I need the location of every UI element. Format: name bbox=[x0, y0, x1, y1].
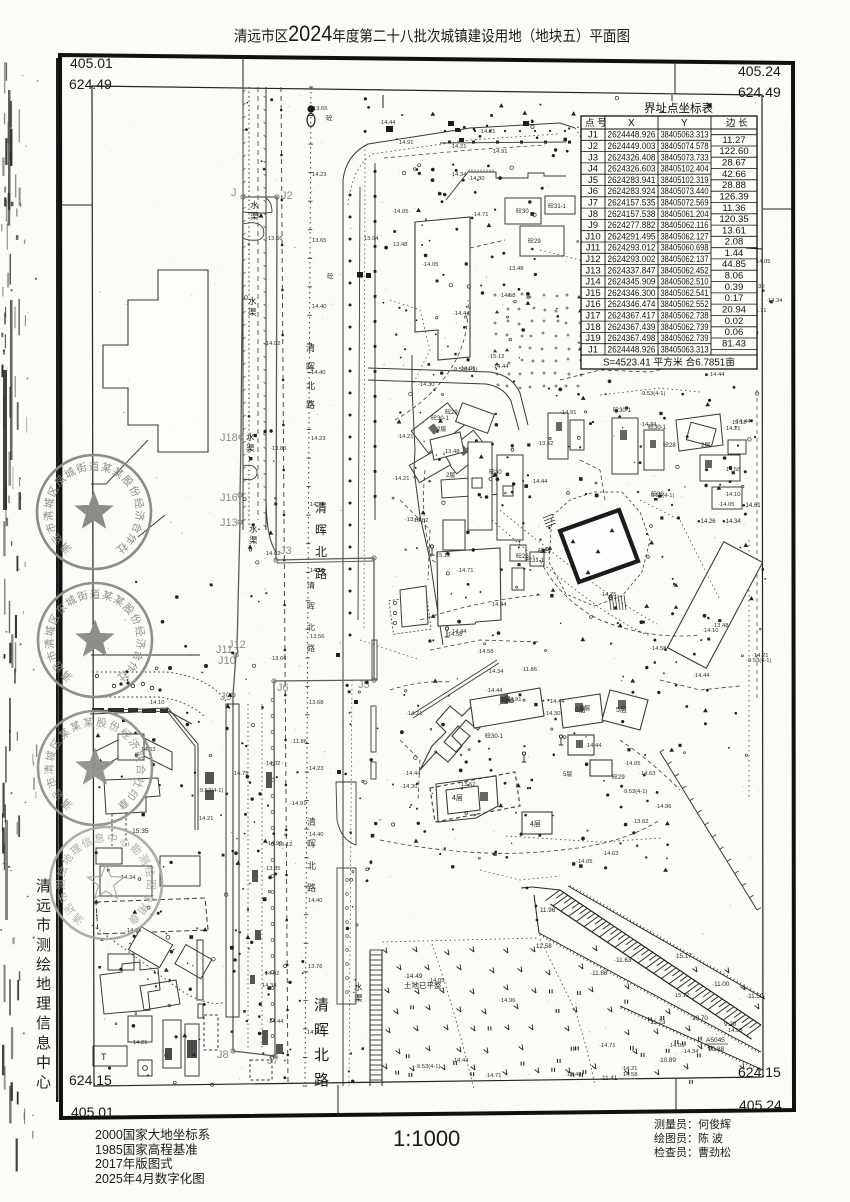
svg-text:绘: 绘 bbox=[36, 956, 51, 973]
svg-text:·14.34: ·14.34 bbox=[487, 669, 504, 675]
svg-text:中: 中 bbox=[106, 831, 118, 845]
svg-text:渠: 渠 bbox=[249, 535, 258, 545]
svg-text:2624346.474: 2624346.474 bbox=[608, 299, 657, 310]
svg-text:渠: 渠 bbox=[248, 307, 257, 317]
svg-text:J10: J10 bbox=[585, 231, 600, 242]
svg-text:44.85: 44.85 bbox=[722, 259, 746, 270]
svg-text:·14.44: ·14.44 bbox=[693, 673, 710, 679]
svg-text:A5045: A5045 bbox=[706, 1037, 725, 1044]
svg-text:·14.63: ·14.63 bbox=[639, 771, 655, 777]
svg-text:0.02: 0.02 bbox=[725, 316, 744, 327]
svg-text:·14.58: ·14.58 bbox=[650, 646, 666, 652]
svg-text:·10.89: ·10.89 bbox=[658, 1057, 676, 1064]
svg-text:·14.96: ·14.96 bbox=[655, 804, 671, 810]
svg-text:38405062.552: 38405062.552 bbox=[661, 299, 709, 310]
svg-text:路: 路 bbox=[314, 1072, 329, 1089]
svg-text:28.67: 28.67 bbox=[722, 158, 746, 169]
svg-text:38405062.116: 38405062.116 bbox=[661, 220, 709, 231]
svg-text:·14.30: ·14.30 bbox=[401, 784, 417, 790]
svg-text:·14.10: ·14.10 bbox=[148, 700, 164, 706]
svg-text:2624367.498: 2624367.498 bbox=[608, 333, 656, 344]
svg-text:J3: J3 bbox=[588, 152, 598, 163]
svg-text:边 长: 边 长 bbox=[726, 117, 748, 129]
svg-text:·13.48: ·13.48 bbox=[565, 1072, 581, 1078]
svg-text:·14.44: ·14.44 bbox=[404, 771, 421, 777]
svg-text:J18: J18 bbox=[220, 432, 238, 444]
svg-text:J5: J5 bbox=[358, 679, 370, 691]
svg-text:J7: J7 bbox=[588, 198, 598, 209]
svg-text:T: T bbox=[101, 1052, 107, 1062]
svg-text:界址点坐标表: 界址点坐标表 bbox=[644, 101, 713, 115]
svg-text:38405102.319: 38405102.319 bbox=[661, 175, 709, 186]
svg-text:4层: 4层 bbox=[452, 794, 463, 802]
svg-text:2624283.924: 2624283.924 bbox=[608, 186, 657, 197]
svg-text:38405102.404: 38405102.404 bbox=[661, 164, 710, 175]
svg-text:·14.02: ·14.02 bbox=[264, 551, 280, 557]
svg-text:清: 清 bbox=[314, 997, 329, 1014]
svg-text:38405062.452: 38405062.452 bbox=[661, 265, 709, 276]
svg-text:砼29: 砼29 bbox=[445, 408, 458, 416]
svg-text:0.39: 0.39 bbox=[725, 282, 744, 293]
svg-text:1.44: 1.44 bbox=[725, 248, 744, 259]
svg-text:·14.30: ·14.30 bbox=[468, 176, 484, 182]
svg-text:14.23: 14.23 bbox=[311, 436, 326, 442]
svg-text:·9.53(4-1): ·9.53(4-1) bbox=[640, 391, 666, 397]
svg-text:·14.05: ·14.05 bbox=[422, 262, 438, 268]
svg-text:2.08: 2.08 bbox=[725, 237, 744, 248]
svg-text:J2: J2 bbox=[281, 190, 293, 202]
svg-text:砼30: 砼30 bbox=[651, 490, 664, 498]
svg-text:·14.34: ·14.34 bbox=[450, 172, 467, 178]
svg-text:·14.10: ·14.10 bbox=[724, 492, 740, 498]
svg-text:·14.21: ·14.21 bbox=[197, 816, 213, 822]
svg-text:14.23: 14.23 bbox=[312, 172, 327, 178]
svg-text:405.24: 405.24 bbox=[738, 63, 781, 79]
svg-text:J17: J17 bbox=[585, 311, 600, 322]
svg-text:·14.44: ·14.44 bbox=[267, 1019, 284, 1025]
svg-text:1985国家高程基准: 1985国家高程基准 bbox=[95, 1142, 198, 1157]
svg-text:38405062.137: 38405062.137 bbox=[661, 254, 709, 265]
svg-text:晖: 晖 bbox=[307, 839, 316, 849]
svg-text:J2: J2 bbox=[588, 141, 598, 152]
svg-text:·14.02: ·14.02 bbox=[264, 761, 280, 767]
svg-text:J13: J13 bbox=[585, 265, 600, 276]
svg-text:2624293.012: 2624293.012 bbox=[608, 243, 656, 254]
svg-text:J9: J9 bbox=[220, 691, 232, 703]
svg-text:·14.05: ·14.05 bbox=[428, 978, 444, 984]
svg-text:2624157.538: 2624157.538 bbox=[608, 209, 656, 220]
svg-text:38405062.127: 38405062.127 bbox=[661, 231, 709, 242]
svg-text:·11.41: ·11.41 bbox=[600, 1075, 618, 1082]
svg-text:·14.21: ·14.21 bbox=[450, 144, 466, 150]
svg-text:2025年4月数字化图: 2025年4月数字化图 bbox=[95, 1171, 205, 1186]
svg-text:38405062.738: 38405062.738 bbox=[661, 311, 709, 322]
svg-text:0.17: 0.17 bbox=[725, 293, 744, 304]
svg-text:624.49: 624.49 bbox=[69, 76, 112, 92]
svg-text:·11.00: ·11.00 bbox=[712, 981, 730, 988]
svg-text:清: 清 bbox=[43, 638, 57, 650]
svg-text:·14.96: ·14.96 bbox=[499, 998, 515, 1004]
svg-text:·13.62: ·13.62 bbox=[459, 782, 475, 788]
svg-text:J13: J13 bbox=[220, 517, 238, 529]
svg-text:砼30: 砼30 bbox=[516, 207, 529, 215]
svg-text:心: 心 bbox=[36, 1074, 51, 1091]
svg-text:·13.66: ·13.66 bbox=[266, 236, 282, 242]
svg-text:J1: J1 bbox=[588, 344, 598, 355]
svg-text:合: 合 bbox=[134, 764, 147, 775]
svg-text:405.24: 405.24 bbox=[739, 1097, 782, 1113]
svg-text:·13.48: ·13.48 bbox=[443, 449, 459, 455]
svg-text:·13.48: ·13.48 bbox=[507, 266, 523, 272]
svg-text:J18: J18 bbox=[585, 322, 600, 333]
svg-text:·14.58: ·14.58 bbox=[477, 649, 493, 655]
svg-text:12.58: 12.58 bbox=[536, 943, 552, 950]
svg-text:13.61: 13.61 bbox=[722, 225, 746, 236]
svg-text:11.36: 11.36 bbox=[722, 203, 745, 214]
svg-text:·13.94: ·13.94 bbox=[362, 236, 379, 242]
svg-text:J: J bbox=[231, 187, 237, 199]
svg-text:息: 息 bbox=[36, 1035, 51, 1052]
svg-text:J15: J15 bbox=[585, 288, 600, 299]
svg-text:38405074.578: 38405074.578 bbox=[661, 141, 709, 152]
svg-text:·13.66: ·13.66 bbox=[270, 656, 286, 662]
svg-text:·14.49: ·14.49 bbox=[404, 973, 423, 980]
svg-text:·13.62: ·13.62 bbox=[632, 819, 648, 825]
svg-text:J6: J6 bbox=[277, 682, 289, 694]
svg-text:·14.63: ·14.63 bbox=[602, 851, 618, 857]
svg-text:晖: 晖 bbox=[315, 523, 327, 537]
svg-text:·9.53(4-1): ·9.53(4-1) bbox=[622, 789, 648, 795]
svg-text:J9: J9 bbox=[588, 220, 598, 231]
svg-text:14.40: 14.40 bbox=[311, 370, 326, 376]
svg-text:·14.44: ·14.44 bbox=[452, 1058, 469, 1064]
svg-text:水: 水 bbox=[248, 296, 257, 306]
svg-text:·14.34: ·14.34 bbox=[766, 298, 783, 304]
svg-text:测量员：何俊辉: 测量员：何俊辉 bbox=[654, 1117, 731, 1131]
svg-text:20.94: 20.94 bbox=[722, 304, 747, 315]
svg-text:·13.62: ·13.62 bbox=[537, 441, 553, 447]
svg-text:●14.61: ●14.61 bbox=[742, 503, 761, 509]
svg-text:·15.12: ·15.12 bbox=[673, 993, 689, 999]
svg-text:地: 地 bbox=[36, 976, 51, 993]
svg-text:水: 水 bbox=[250, 200, 259, 210]
svg-text:·13.48: ·13.48 bbox=[391, 242, 407, 248]
svg-text:·14.91: ·14.91 bbox=[397, 140, 413, 146]
svg-text:405.01: 405.01 bbox=[71, 1104, 114, 1120]
svg-text:·14.44: ·14.44 bbox=[490, 602, 507, 608]
svg-text:晖: 晖 bbox=[307, 602, 315, 611]
svg-text:2624345.909: 2624345.909 bbox=[608, 277, 656, 288]
svg-text:2624326.408: 2624326.408 bbox=[608, 152, 656, 163]
svg-text:J10: J10 bbox=[218, 655, 236, 667]
svg-text:38405063.313: 38405063.313 bbox=[661, 130, 709, 141]
svg-text:·14.21: ·14.21 bbox=[724, 426, 740, 432]
svg-text:·14.05: ·14.05 bbox=[718, 502, 734, 508]
svg-text:息: 息 bbox=[93, 831, 105, 845]
svg-text:清: 清 bbox=[306, 342, 315, 353]
svg-text:路: 路 bbox=[306, 399, 315, 410]
svg-text:13.76: 13.76 bbox=[308, 964, 323, 970]
svg-text:·11.23: ·11.23 bbox=[648, 1019, 666, 1026]
svg-text:38405060.698: 38405060.698 bbox=[661, 243, 709, 254]
svg-text:2624448.926: 2624448.926 bbox=[608, 344, 656, 355]
svg-text:·14.58: ·14.58 bbox=[726, 1028, 742, 1034]
svg-text:·14.75: ·14.75 bbox=[600, 592, 616, 598]
svg-text:2017年版图式: 2017年版图式 bbox=[95, 1157, 173, 1171]
svg-text:·14.34: ·14.34 bbox=[682, 1049, 699, 1055]
svg-text:●14.26: ●14.26 bbox=[697, 519, 716, 525]
svg-text:5层: 5层 bbox=[563, 771, 572, 778]
svg-text:·14.44: ·14.44 bbox=[708, 372, 725, 378]
svg-text:·9.53(4-1): ·9.53(4-1) bbox=[452, 367, 478, 373]
svg-text:J7: J7 bbox=[267, 1055, 279, 1067]
svg-text:·10.70: ·10.70 bbox=[690, 1015, 708, 1022]
svg-text:·9.53(4-1): ·9.53(4-1) bbox=[415, 1064, 441, 1070]
svg-text:13.65: 13.65 bbox=[313, 106, 328, 112]
svg-text:·14.44: ·14.44 bbox=[450, 629, 467, 635]
svg-text:15.17: 15.17 bbox=[676, 953, 692, 960]
svg-text:J8: J8 bbox=[588, 209, 598, 220]
svg-text:38405073.733: 38405073.733 bbox=[661, 152, 709, 163]
svg-text:·14.91: ·14.91 bbox=[560, 410, 576, 416]
svg-text:14.40: 14.40 bbox=[312, 304, 327, 310]
svg-text:·14.91: ·14.91 bbox=[290, 801, 306, 807]
svg-text:砼29: 砼29 bbox=[528, 237, 541, 245]
svg-text:2624449.003: 2624449.003 bbox=[608, 141, 656, 152]
svg-text:·14.96: ·14.96 bbox=[266, 841, 282, 847]
svg-text:13.65: 13.65 bbox=[312, 238, 327, 244]
svg-text:38405062.739: 38405062.739 bbox=[661, 322, 709, 333]
svg-text:·14.44: ·14.44 bbox=[492, 364, 509, 370]
svg-text:624.49: 624.49 bbox=[738, 84, 781, 100]
svg-text:水: 水 bbox=[354, 982, 363, 992]
svg-text:渠: 渠 bbox=[250, 211, 259, 221]
svg-text:14.23: 14.23 bbox=[310, 502, 325, 508]
svg-text:X: X bbox=[628, 118, 635, 129]
svg-text:清: 清 bbox=[43, 764, 56, 775]
svg-text:济: 济 bbox=[134, 638, 148, 650]
svg-text:·13.48: ·13.48 bbox=[712, 623, 728, 629]
svg-text:2624346.300: 2624346.300 bbox=[608, 288, 656, 299]
svg-text:2000国家大地坐标系: 2000国家大地坐标系 bbox=[95, 1127, 210, 1142]
svg-text:14.58: 14.58 bbox=[310, 568, 325, 574]
svg-text:J12: J12 bbox=[585, 254, 600, 265]
svg-text:405.01: 405.01 bbox=[70, 55, 113, 71]
svg-text:13.56: 13.56 bbox=[310, 634, 325, 640]
svg-text:·13.85: ·13.85 bbox=[264, 866, 280, 872]
svg-text:市: 市 bbox=[36, 917, 51, 934]
svg-text:J6: J6 bbox=[588, 186, 598, 197]
svg-text:中: 中 bbox=[36, 1054, 51, 1071]
svg-text:8.06: 8.06 bbox=[725, 271, 744, 282]
svg-text:清: 清 bbox=[307, 816, 316, 827]
svg-text:5层: 5层 bbox=[616, 706, 627, 714]
svg-text:·14.21: ·14.21 bbox=[406, 711, 422, 717]
svg-text:·14.30: ·14.30 bbox=[418, 382, 434, 388]
svg-text:J14: J14 bbox=[585, 277, 600, 288]
svg-text:·9.53(4-1): ·9.53(4-1) bbox=[198, 788, 224, 794]
svg-text:点 号: 点 号 bbox=[585, 118, 607, 129]
svg-text:·13.62: ·13.62 bbox=[412, 518, 428, 524]
svg-text:42.66: 42.66 bbox=[722, 169, 746, 180]
svg-text:·14.21: ·14.21 bbox=[621, 1066, 637, 1072]
svg-text:渠: 渠 bbox=[246, 443, 255, 453]
svg-text:5层: 5层 bbox=[581, 705, 590, 712]
svg-text:·14.58: ·14.58 bbox=[621, 1072, 637, 1078]
svg-text:·14.21: ·14.21 bbox=[393, 476, 409, 482]
svg-text:14.40: 14.40 bbox=[309, 832, 324, 838]
svg-text:·14.71: ·14.71 bbox=[457, 568, 473, 574]
svg-text:2624157.535: 2624157.535 bbox=[608, 198, 656, 209]
svg-text:J3: J3 bbox=[280, 545, 292, 557]
svg-text:测: 测 bbox=[54, 879, 67, 890]
svg-text:·14.44: ·14.44 bbox=[486, 688, 503, 694]
svg-text:·15.12: ·15.12 bbox=[730, 420, 746, 426]
svg-text:·14.21: ·14.21 bbox=[479, 129, 495, 135]
svg-text:·14.21: ·14.21 bbox=[752, 653, 768, 659]
svg-text:·14.71: ·14.71 bbox=[485, 1073, 501, 1079]
svg-text:624.15: 624.15 bbox=[69, 1072, 112, 1088]
svg-text:信: 信 bbox=[36, 1015, 51, 1032]
svg-text:北: 北 bbox=[307, 623, 315, 632]
svg-text:2624337.847: 2624337.847 bbox=[608, 265, 656, 276]
svg-text:·11.50: ·11.50 bbox=[746, 993, 764, 1000]
svg-text:38405062.510: 38405062.510 bbox=[661, 277, 709, 288]
svg-text:13.68: 13.68 bbox=[309, 700, 324, 706]
svg-text:·11.86: ·11.86 bbox=[291, 739, 307, 745]
svg-text:J16: J16 bbox=[220, 492, 238, 504]
svg-text:J4: J4 bbox=[588, 164, 598, 175]
svg-text:2624277.882: 2624277.882 bbox=[608, 220, 656, 231]
svg-text:2624448.926: 2624448.926 bbox=[608, 130, 656, 141]
svg-text:·14.30: ·14.30 bbox=[544, 711, 560, 717]
svg-text:道: 道 bbox=[90, 588, 101, 601]
svg-text:·14.91: ·14.91 bbox=[491, 149, 507, 155]
svg-text:S=4523.41 平方米 合6.7851亩: S=4523.41 平方米 合6.7851亩 bbox=[603, 356, 735, 369]
svg-text:2层: 2层 bbox=[701, 442, 710, 449]
svg-text:38405061.204: 38405061.204 bbox=[661, 209, 710, 220]
svg-text:北: 北 bbox=[307, 861, 316, 871]
svg-text:2层: 2层 bbox=[446, 472, 455, 479]
svg-text:38405063.313: 38405063.313 bbox=[661, 344, 709, 355]
svg-text:J8: J8 bbox=[217, 1049, 229, 1061]
svg-text:股: 股 bbox=[95, 717, 108, 730]
svg-text:·11.86: ·11.86 bbox=[521, 667, 537, 673]
svg-text:·14.44: ·14.44 bbox=[548, 699, 565, 705]
svg-text:清: 清 bbox=[36, 878, 51, 895]
svg-text:北: 北 bbox=[306, 381, 315, 391]
svg-text:Y: Y bbox=[681, 118, 688, 129]
svg-text:路: 路 bbox=[307, 882, 316, 893]
svg-text:10.88: 10.88 bbox=[708, 1046, 725, 1053]
svg-text:砼29: 砼29 bbox=[612, 773, 625, 781]
svg-text:·14.05: ·14.05 bbox=[576, 859, 592, 865]
svg-text:J5: J5 bbox=[588, 175, 598, 186]
svg-text:126.39: 126.39 bbox=[719, 192, 748, 203]
svg-text:2624291.495: 2624291.495 bbox=[608, 231, 656, 242]
svg-text:·14.71: ·14.71 bbox=[599, 1043, 615, 1049]
svg-text:图: 图 bbox=[144, 879, 156, 890]
svg-text:路: 路 bbox=[307, 643, 315, 653]
svg-text:渠: 渠 bbox=[354, 993, 363, 1003]
svg-text:2624367.417: 2624367.417 bbox=[608, 311, 656, 322]
svg-text:·14.02: ·14.02 bbox=[263, 971, 279, 977]
svg-text:28.88: 28.88 bbox=[722, 180, 746, 191]
svg-text:120.35: 120.35 bbox=[719, 214, 748, 225]
svg-text:14.23: 14.23 bbox=[309, 766, 324, 772]
svg-text:122.60: 122.60 bbox=[719, 146, 748, 157]
svg-text:道: 道 bbox=[89, 460, 100, 473]
svg-text:清: 清 bbox=[42, 510, 56, 522]
svg-text:·14.02: ·14.02 bbox=[264, 341, 280, 347]
svg-text:济: 济 bbox=[133, 510, 147, 522]
svg-text:·14.58: ·14.58 bbox=[499, 293, 515, 299]
svg-text:·11.86: ·11.86 bbox=[590, 970, 608, 977]
svg-text:38405073.440: 38405073.440 bbox=[661, 186, 709, 197]
svg-text:2624283.941: 2624283.941 bbox=[608, 175, 656, 186]
svg-text:绘图员：陈 波: 绘图员：陈 波 bbox=[654, 1131, 723, 1145]
svg-text:·14.44: ·14.44 bbox=[585, 743, 602, 749]
svg-text:38405062.541: 38405062.541 bbox=[661, 288, 709, 299]
svg-text:远: 远 bbox=[36, 898, 51, 915]
svg-text:·14.44: ·14.44 bbox=[379, 120, 396, 126]
svg-text:清: 清 bbox=[307, 580, 315, 590]
svg-text:2624367.439: 2624367.439 bbox=[608, 322, 656, 333]
svg-text:38405062.739: 38405062.739 bbox=[661, 333, 709, 344]
svg-text:·15.12: ·15.12 bbox=[488, 354, 504, 360]
svg-text:11.96: 11.96 bbox=[540, 907, 556, 914]
svg-text:北: 北 bbox=[314, 1047, 329, 1064]
svg-text:624.15: 624.15 bbox=[738, 1064, 781, 1080]
svg-text:J12: J12 bbox=[228, 639, 246, 651]
svg-text:·14.21: ·14.21 bbox=[397, 434, 413, 440]
svg-text:9.20: 9.20 bbox=[724, 1021, 737, 1028]
svg-text:J16: J16 bbox=[585, 299, 600, 310]
svg-text:理: 理 bbox=[36, 996, 51, 1013]
svg-text:·14.05: ·14.05 bbox=[392, 209, 408, 215]
svg-text:测: 测 bbox=[36, 937, 51, 954]
svg-text:38405072.569: 38405072.569 bbox=[661, 198, 709, 209]
svg-text:·14.34: ·14.34 bbox=[119, 875, 136, 881]
svg-text:砼30-1: 砼30-1 bbox=[648, 423, 667, 431]
svg-text:81.43: 81.43 bbox=[722, 338, 746, 349]
svg-text:11.27: 11.27 bbox=[722, 135, 745, 146]
svg-text:2624326.603: 2624326.603 bbox=[608, 164, 656, 175]
svg-text:14.40: 14.40 bbox=[308, 898, 323, 904]
svg-text:砼31-1: 砼31-1 bbox=[548, 202, 567, 210]
svg-text:14.40: 14.40 bbox=[307, 1030, 322, 1036]
svg-text:砼: 砼 bbox=[326, 113, 333, 122]
svg-text:·14.71: ·14.71 bbox=[472, 212, 488, 218]
svg-text:·14.44: ·14.44 bbox=[531, 479, 548, 485]
svg-text:J11: J11 bbox=[586, 243, 601, 254]
svg-text:0.06: 0.06 bbox=[725, 327, 744, 338]
svg-text:北: 北 bbox=[315, 545, 327, 559]
svg-text:J1: J1 bbox=[588, 130, 598, 141]
svg-text:2624293.002: 2624293.002 bbox=[608, 254, 656, 265]
svg-text:J19: J19 bbox=[585, 333, 600, 344]
svg-text:·14.21: ·14.21 bbox=[131, 1040, 147, 1046]
svg-text:砼30-1: 砼30-1 bbox=[485, 732, 504, 740]
svg-text:·13.85: ·13.85 bbox=[270, 446, 286, 452]
svg-text:●14.34: ●14.34 bbox=[722, 519, 741, 525]
svg-text:砼28: 砼28 bbox=[663, 441, 676, 449]
svg-text:·14.05: ·14.05 bbox=[624, 761, 640, 767]
svg-text:检查员：曹劲松: 检查员：曹劲松 bbox=[654, 1145, 731, 1159]
svg-text:砼: 砼 bbox=[327, 271, 334, 280]
svg-text:砼28: 砼28 bbox=[516, 552, 529, 560]
svg-text:·11.63: ·11.63 bbox=[614, 957, 632, 964]
